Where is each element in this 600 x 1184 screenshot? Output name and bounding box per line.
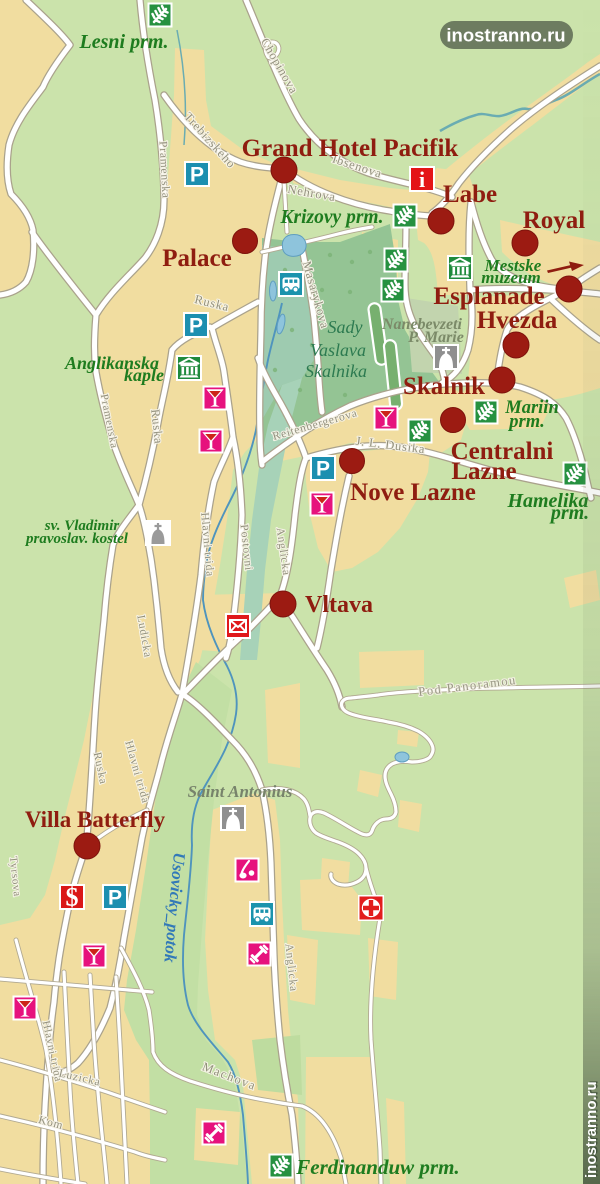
- svg-text:prm.: prm.: [507, 412, 544, 432]
- svg-text:Grand Hotel Pacifik: Grand Hotel Pacifik: [242, 135, 459, 162]
- svg-text:Esplanade: Esplanade: [433, 283, 544, 310]
- svg-text:pravoslav. kostel: pravoslav. kostel: [24, 531, 129, 547]
- svg-text:Vltava: Vltava: [305, 592, 373, 618]
- svg-text:Hvezda: Hvezda: [477, 307, 558, 334]
- svg-text:Palace: Palace: [162, 245, 231, 272]
- svg-text:P. Marie: P. Marie: [407, 329, 464, 346]
- svg-text:Lesni prm.: Lesni prm.: [79, 31, 169, 53]
- svg-text:Villa Batterfly: Villa Batterfly: [25, 807, 166, 832]
- svg-text:Nove Lazne: Nove Lazne: [350, 479, 476, 506]
- svg-text:Sady: Sady: [328, 317, 363, 337]
- svg-text:Labe: Labe: [443, 181, 497, 208]
- svg-text:inostranno.ru: inostranno.ru: [446, 25, 565, 46]
- svg-text:Skalnika: Skalnika: [305, 361, 367, 381]
- svg-text:Krizovy prm.: Krizovy prm.: [280, 207, 384, 228]
- svg-text:Skalnik: Skalnik: [403, 373, 485, 400]
- svg-text:kaple: kaple: [124, 365, 164, 385]
- svg-text:Royal: Royal: [523, 207, 586, 234]
- svg-text:Saint Antonius: Saint Antonius: [188, 782, 293, 801]
- svg-text:inostranno.ru: inostranno.ru: [583, 1081, 600, 1178]
- svg-text:Vaslava: Vaslava: [310, 340, 366, 360]
- svg-text:Ferdinanduw prm.: Ferdinanduw prm.: [295, 1155, 459, 1179]
